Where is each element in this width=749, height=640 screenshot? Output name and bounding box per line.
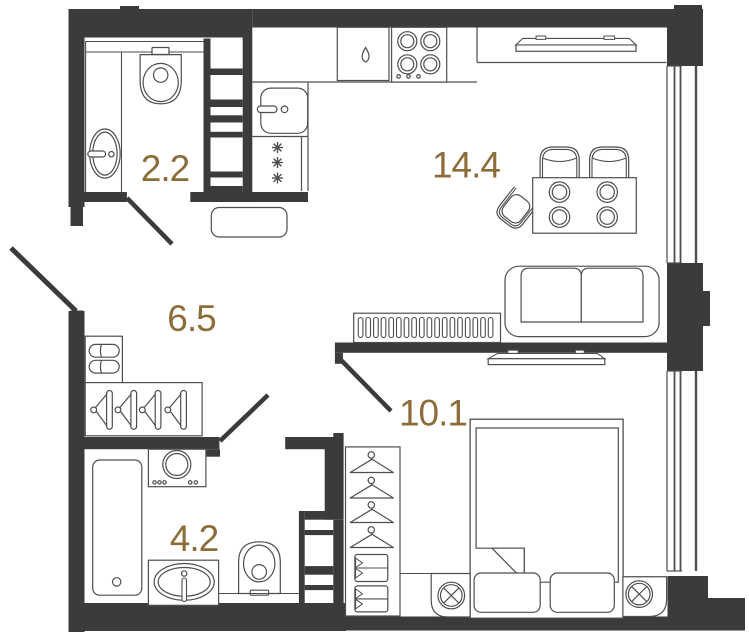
svg-text:6.5: 6.5 — [167, 298, 216, 339]
svg-text:10.1: 10.1 — [399, 392, 467, 433]
svg-text:2.2: 2.2 — [141, 148, 189, 189]
svg-text:4.2: 4.2 — [170, 518, 218, 559]
svg-text:14.4: 14.4 — [432, 145, 500, 186]
